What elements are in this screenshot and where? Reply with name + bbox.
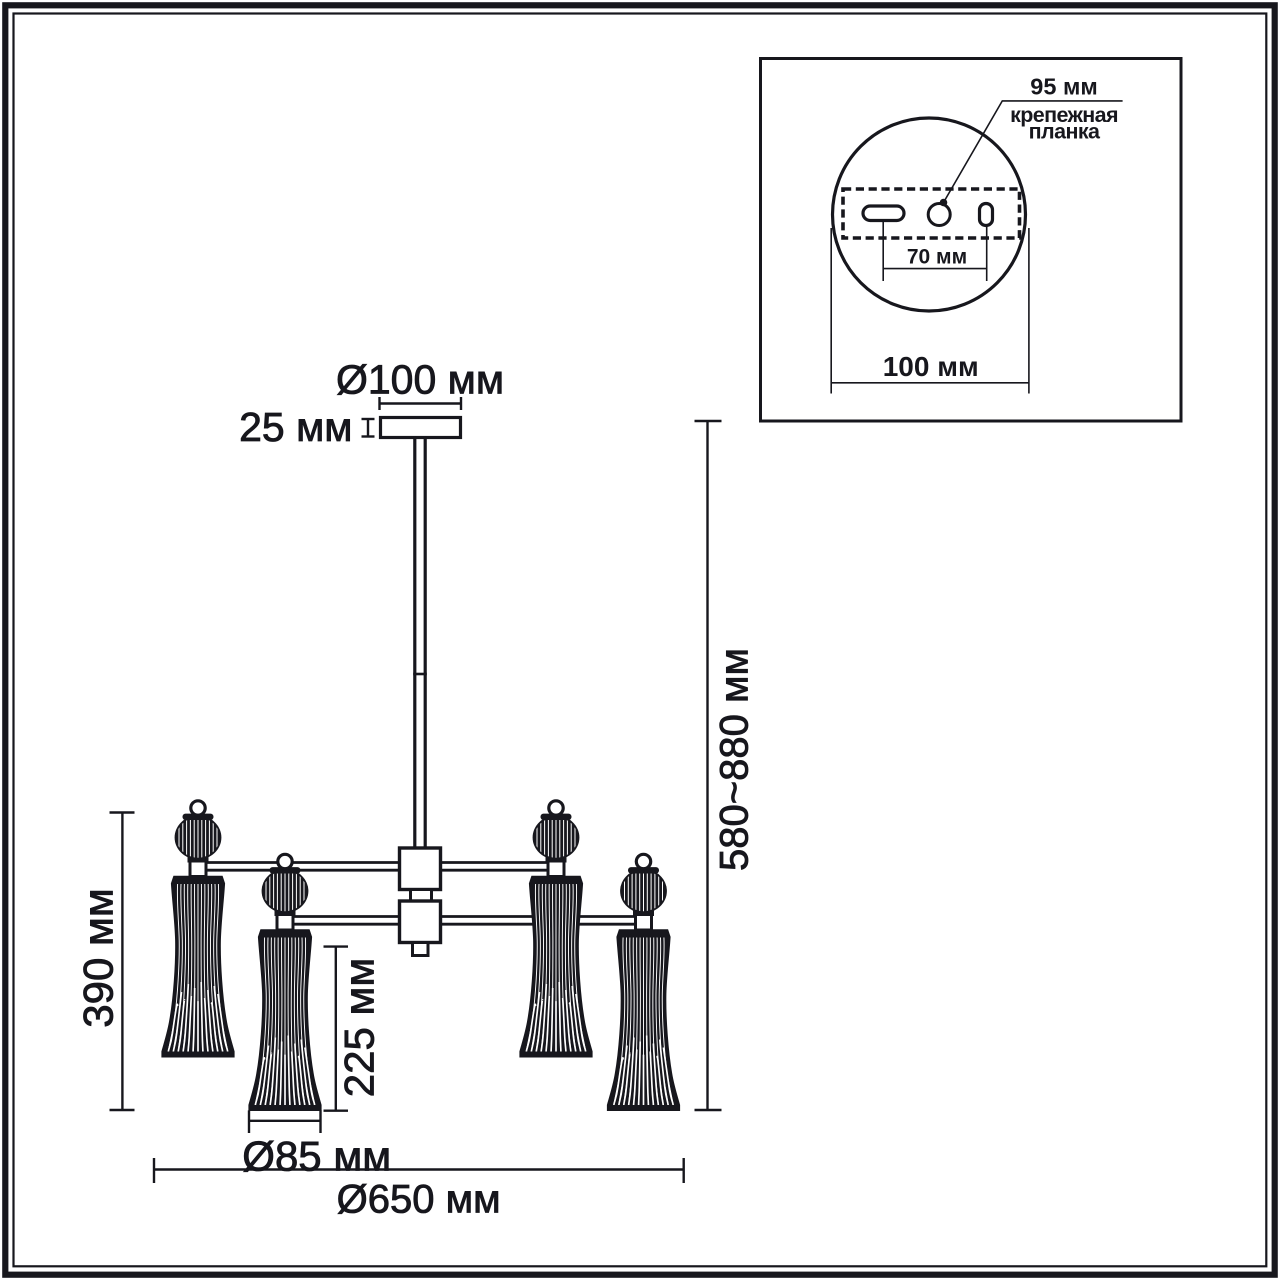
- svg-text:70 мм: 70 мм: [907, 246, 967, 269]
- svg-text:225 мм: 225 мм: [336, 958, 383, 1098]
- svg-text:390 мм: 390 мм: [75, 888, 122, 1028]
- svg-text:25 мм: 25 мм: [239, 404, 352, 450]
- svg-text:Ø650 мм: Ø650 мм: [337, 1177, 501, 1221]
- svg-text:Ø100 мм: Ø100 мм: [336, 356, 504, 402]
- svg-text:100 мм: 100 мм: [883, 351, 979, 382]
- svg-text:95 мм: 95 мм: [1030, 74, 1097, 100]
- svg-text:Ø85 мм: Ø85 мм: [242, 1133, 391, 1180]
- svg-text:планка: планка: [1029, 120, 1101, 144]
- svg-text:580~880 мм: 580~880 мм: [713, 648, 757, 871]
